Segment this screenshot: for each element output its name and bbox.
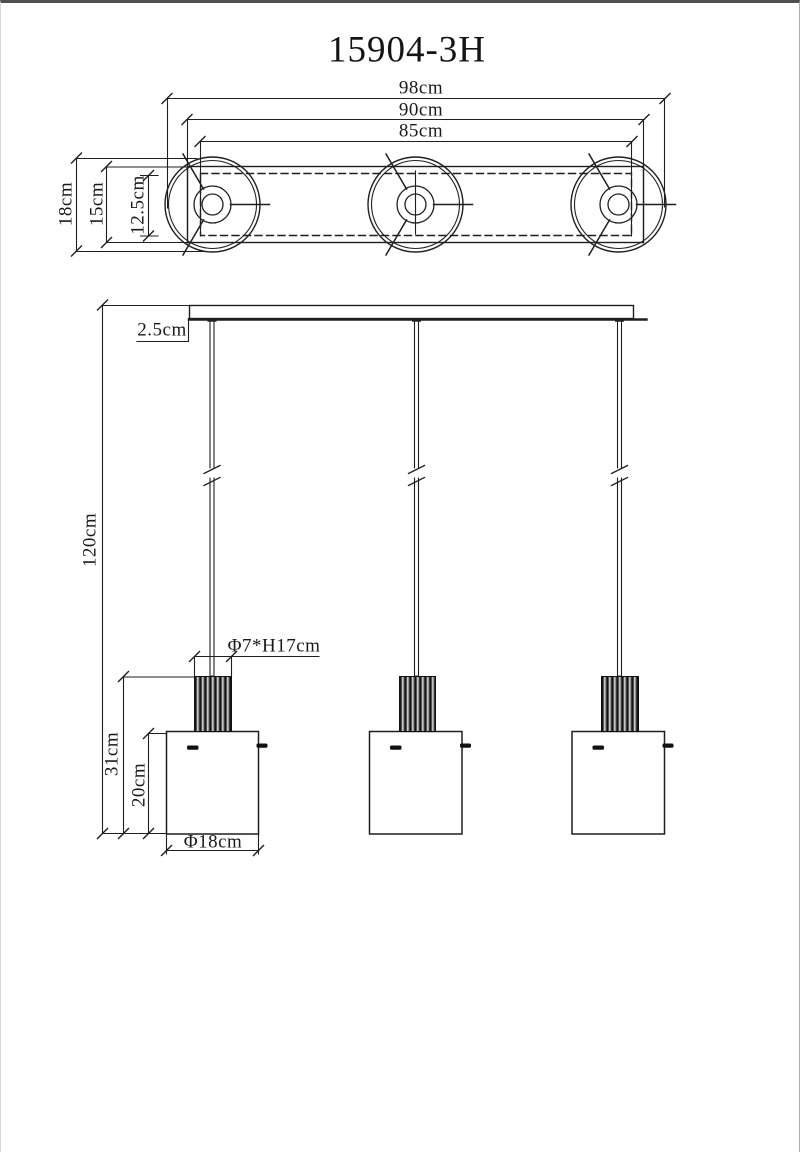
shade-screw-left <box>593 746 605 750</box>
dim-18cm-label: 18cm <box>57 182 76 226</box>
dim-85cm-label: 85cm <box>399 122 443 141</box>
cylinder-front-right <box>601 676 639 732</box>
dim-2-5cm-label: 2.5cm <box>137 321 186 340</box>
dim-15cm-label: 15cm <box>88 182 107 226</box>
cord-left <box>204 319 220 681</box>
dim-120cm-label: 120cm <box>81 513 100 567</box>
shade-screw-right <box>257 744 268 748</box>
cylinder-front-middle <box>399 676 436 732</box>
dim-cylinder-label: Φ7*H17cm <box>228 637 321 656</box>
dim-90cm-label: 90cm <box>399 100 443 119</box>
dim-phi18cm-label: Φ18cm <box>184 833 243 852</box>
technical-drawing-page: 15904-3H <box>0 0 800 1152</box>
shade-screw-right <box>460 744 471 748</box>
dim-31cm <box>119 672 195 839</box>
dim-12-5cm-label: 12.5cm <box>129 175 148 234</box>
shade-screw-left <box>390 746 402 750</box>
drawing-linework <box>1 3 800 1152</box>
cylinder-front-left <box>194 676 232 732</box>
shade-screw-left <box>187 746 199 750</box>
front-view <box>98 300 674 856</box>
cord-right <box>612 319 628 681</box>
dim-20cm-label: 20cm <box>130 763 149 807</box>
shade-top-view-right <box>571 154 676 255</box>
top-view <box>72 94 676 257</box>
cord-middle <box>409 319 425 681</box>
canopy-bar <box>190 306 634 319</box>
shade-top-view-left <box>165 154 270 255</box>
dim-31cm-label: 31cm <box>103 732 122 776</box>
shade-screw-right <box>663 744 674 748</box>
dim-98cm-label: 98cm <box>399 79 443 98</box>
shade-front-right <box>572 732 674 835</box>
shade-front-middle <box>370 732 472 835</box>
shade-front-left <box>167 732 268 835</box>
shade-top-view-middle <box>368 154 473 255</box>
